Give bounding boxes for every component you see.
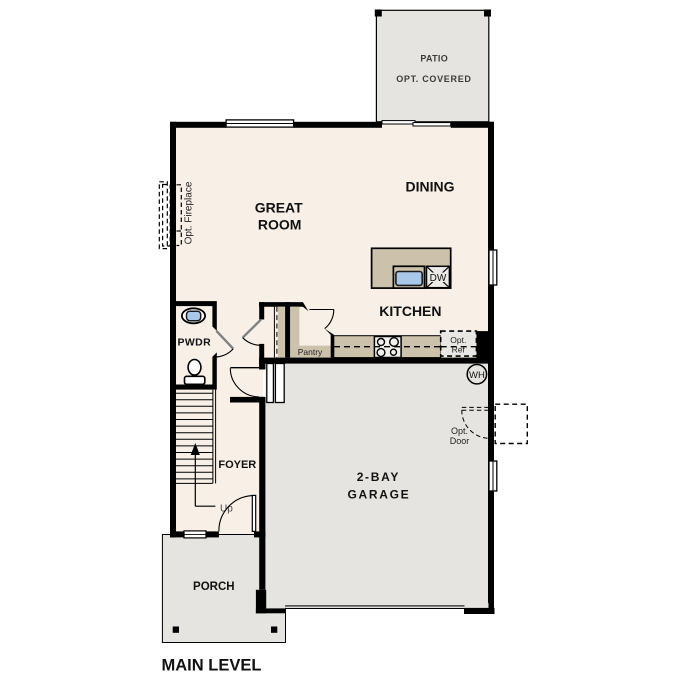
svg-text:WH: WH xyxy=(469,370,485,381)
svg-text:FOYER: FOYER xyxy=(218,459,256,471)
svg-text:KITCHEN: KITCHEN xyxy=(379,303,441,319)
svg-text:PATIO: PATIO xyxy=(420,53,448,63)
svg-text:Opt.: Opt. xyxy=(451,426,468,436)
svg-text:DINING: DINING xyxy=(406,179,455,195)
svg-text:2-BAY: 2-BAY xyxy=(357,470,400,484)
svg-text:PORCH: PORCH xyxy=(193,581,235,593)
svg-text:GARAGE: GARAGE xyxy=(347,487,410,501)
svg-text:ROOM: ROOM xyxy=(258,217,302,233)
svg-text:OPT. COVERED: OPT. COVERED xyxy=(396,74,471,84)
svg-text:PWDR: PWDR xyxy=(177,336,211,348)
svg-text:MAIN LEVEL: MAIN LEVEL xyxy=(162,657,262,675)
svg-text:Door: Door xyxy=(450,436,470,446)
svg-text:Opt. Fireplace: Opt. Fireplace xyxy=(183,181,194,244)
svg-text:DW: DW xyxy=(430,273,447,284)
svg-text:Opt.: Opt. xyxy=(450,335,466,345)
svg-text:Pantry: Pantry xyxy=(298,347,323,357)
svg-text:GREAT: GREAT xyxy=(255,200,303,216)
